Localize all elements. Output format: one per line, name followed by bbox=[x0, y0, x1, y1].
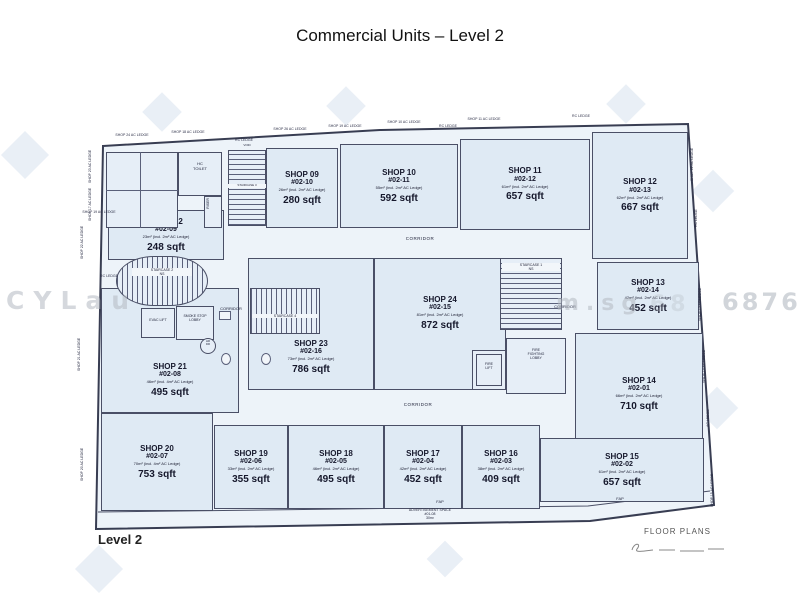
shop-area-note: 23m² (incl. 2m² AC Ledge) bbox=[143, 235, 190, 240]
signature-scribble bbox=[626, 538, 736, 556]
shop-unit: #02-04 bbox=[412, 458, 434, 466]
shop-area-sqft: 657 sqft bbox=[603, 477, 641, 489]
shop-area-note: 66m² (incl. 2m² AC Ledge) bbox=[616, 394, 663, 399]
shop-name: SHOP 17 bbox=[406, 449, 440, 458]
ledge-label-t9: RC LEDGE bbox=[556, 114, 606, 118]
shop-unit: #02-16 bbox=[300, 348, 322, 356]
shop-unit: #02-01 bbox=[628, 385, 650, 393]
label-c1: CORRIDOR bbox=[384, 236, 456, 241]
shop-s09: SHOP 09 #02-10 26m² (incl. 2m² AC Ledge)… bbox=[266, 148, 338, 228]
shop-area-note: 38m² (incl. 2m² AC Ledge) bbox=[478, 467, 525, 472]
label-smokelobby: SMOKE STOP LOBBY bbox=[177, 314, 213, 322]
shop-name: SHOP 11 bbox=[508, 166, 541, 175]
shop-area-sqft: 710 sqft bbox=[620, 401, 658, 413]
watermark-text: CYLau bbox=[6, 286, 138, 315]
ledge-label-t7: RC LEDGE bbox=[430, 124, 466, 128]
shop-area-sqft: 280 sqft bbox=[283, 195, 321, 207]
label-void: VOID bbox=[228, 144, 266, 148]
label-hrdr: HR DR bbox=[200, 340, 216, 347]
ledge-label-t2: SHOP 18 AC LEDGE bbox=[168, 130, 208, 134]
shop-area-note: 55m² (incl. 2m² AC Ledge) bbox=[376, 186, 423, 191]
shop-area-sqft: 248 sqft bbox=[147, 242, 185, 254]
shop-name: SHOP 23 bbox=[294, 339, 328, 348]
shop-area-note: 61m² (incl. 2m² AC Ledge) bbox=[502, 185, 549, 190]
shop-name: SHOP 12 bbox=[623, 177, 657, 186]
shop-area-sqft: 592 sqft bbox=[380, 193, 418, 205]
ledge-label-r1: SHOP 12 AC LEDGE bbox=[690, 146, 694, 182]
shop-s19: SHOP 19 #02-06 33m² (incl. 2m² AC Ledge)… bbox=[214, 425, 288, 509]
floor-plan-page: Commercial Units – Level 2 SHOP 09 #02-1… bbox=[0, 0, 800, 600]
toilet-divider-wall bbox=[106, 190, 178, 191]
hc-toilet-room bbox=[178, 152, 222, 196]
shop-name: SHOP 10 bbox=[382, 168, 416, 177]
wc-fixture bbox=[221, 353, 231, 365]
shop-s17: SHOP 17 #02-04 42m² (incl. 2m² AC Ledge)… bbox=[384, 425, 462, 509]
shop-name: SHOP 13 bbox=[631, 278, 665, 287]
ledge-label-t6: SHOP 10 AC LEDGE bbox=[384, 120, 424, 124]
staircase-4 bbox=[250, 288, 320, 334]
label-firelift: FIRE LIFT bbox=[474, 362, 504, 370]
shop-area-note: 26m² (incl. 2m² AC Ledge) bbox=[279, 188, 326, 193]
shop-area-sqft: 495 sqft bbox=[317, 474, 355, 486]
label-ffl: FIRE FIGHTING LOBBY bbox=[510, 348, 562, 361]
label-evaclift: EVAC LIFT bbox=[142, 318, 174, 322]
shop-area-note: 62m² (incl. 2m² AC Ledge) bbox=[617, 196, 664, 201]
shop-area-sqft: 495 sqft bbox=[151, 387, 189, 399]
label-hctoilet: HC TOILET bbox=[182, 162, 218, 172]
ledge-label-l3: SHOP 19 AC LEDGE bbox=[82, 210, 116, 214]
label-stair2: STAIRCASE 2 NS bbox=[132, 268, 192, 276]
shop-unit: #02-13 bbox=[629, 187, 651, 195]
ledge-label-l4: SHOP 22 AC LEDGE bbox=[80, 224, 84, 260]
watermark-text: 68 bbox=[650, 292, 691, 317]
ledge-label-l6: SHOP 21 AC LEDGE bbox=[77, 336, 81, 372]
shop-unit: #02-02 bbox=[611, 461, 633, 469]
shop-unit: #02-12 bbox=[514, 176, 536, 184]
shop-unit: #02-11 bbox=[388, 177, 409, 185]
label-c3: CORRIDOR bbox=[206, 307, 256, 312]
shop-area-note: 42m² (incl. 2m² AC Ledge) bbox=[400, 467, 447, 472]
fire-fighting-lobby bbox=[506, 338, 566, 394]
ledge-label-l2: SHOP 17 AC LEDGE bbox=[88, 186, 92, 222]
shop-name: SHOP 19 bbox=[234, 449, 268, 458]
shop-name: SHOP 21 bbox=[153, 362, 187, 371]
sink-fixture bbox=[219, 311, 231, 320]
shop-unit: #02-05 bbox=[325, 458, 347, 466]
shop-area-note: 46m² (incl. 4m² AC Ledge) bbox=[147, 380, 194, 385]
shop-s15: SHOP 15 #02-02 61m² (incl. 2m² AC Ledge)… bbox=[540, 438, 704, 502]
label-fap2: FAP bbox=[610, 497, 630, 502]
shop-s16: SHOP 16 #02-03 38m² (incl. 2m² AC Ledge)… bbox=[462, 425, 540, 509]
ledge-label-t1: SHOP 24 AC LEDGE bbox=[112, 133, 152, 137]
shop-unit: #02-03 bbox=[490, 458, 512, 466]
evac-lift bbox=[141, 308, 175, 338]
label-fap1: FAP bbox=[430, 500, 450, 505]
ledge-label-t3: RC LEDGE bbox=[224, 138, 264, 142]
shop-name: SHOP 14 bbox=[622, 376, 656, 385]
shop-name: SHOP 24 bbox=[423, 295, 457, 304]
ledge-label-t8: SHOP 11 AC LEDGE bbox=[464, 117, 504, 121]
shop-unit: #02-07 bbox=[146, 453, 168, 461]
label-riser: RISER bbox=[206, 198, 210, 209]
shop-unit: #02-08 bbox=[159, 371, 181, 379]
shop-unit: #02-15 bbox=[429, 304, 451, 312]
floor-plans-label: FLOOR PLANS bbox=[644, 527, 711, 536]
ledge-label-t4: SHOP 26 AC LEDGE bbox=[270, 127, 310, 131]
shop-area-note: 73m² (incl. 2m² AC Ledge) bbox=[288, 357, 335, 362]
wc-fixture bbox=[261, 353, 271, 365]
shop-area-sqft: 667 sqft bbox=[621, 202, 659, 214]
label-stair4: STAIRCASE 4 bbox=[252, 314, 318, 318]
ledge-label-l1: SHOP 23 AC LEDGE bbox=[88, 148, 92, 184]
ledge-label-r3: SHOP 13 AC LEDGE bbox=[698, 286, 702, 322]
shop-area-sqft: 355 sqft bbox=[232, 474, 270, 486]
ledge-label-t5: SHOP 19 AC LEDGE bbox=[325, 124, 365, 128]
shop-area-note: 33m² (incl. 2m² AC Ledge) bbox=[228, 467, 275, 472]
shop-area-note: 70m² (incl. 4m² AC Ledge) bbox=[134, 462, 181, 467]
shop-s11: SHOP 11 #02-12 61m² (incl. 2m² AC Ledge)… bbox=[460, 139, 590, 230]
shop-area-sqft: 657 sqft bbox=[506, 191, 544, 203]
shop-name: SHOP 09 bbox=[285, 170, 319, 179]
ledge-label-r4: SHOP 14 AC LEDGE bbox=[702, 348, 706, 384]
ledge-label-r2: RC LEDGE bbox=[694, 200, 698, 236]
shop-name: SHOP 18 bbox=[319, 449, 353, 458]
shop-area-sqft: 409 sqft bbox=[482, 474, 520, 486]
shop-name: SHOP 16 bbox=[484, 449, 518, 458]
watermark-text: m.sg bbox=[556, 291, 644, 316]
shop-s18: SHOP 18 #02-05 46m² (incl. 2m² AC Ledge)… bbox=[288, 425, 384, 509]
shop-area-note: 61m² (incl. 2m² AC Ledge) bbox=[599, 470, 646, 475]
shop-s10: SHOP 10 #02-11 55m² (incl. 2m² AC Ledge)… bbox=[340, 144, 458, 228]
level-label: Level 2 bbox=[98, 532, 142, 547]
shop-unit: #02-06 bbox=[240, 458, 262, 466]
shop-unit: #02-10 bbox=[291, 179, 313, 187]
ledge-label-l7: SHOP 20 AC LEDGE bbox=[80, 446, 84, 482]
shop-s14: SHOP 14 #02-01 66m² (incl. 2m² AC Ledge)… bbox=[575, 333, 703, 455]
shop-area-sqft: 786 sqft bbox=[292, 364, 330, 376]
shop-area-note: 46m² (incl. 2m² AC Ledge) bbox=[313, 467, 360, 472]
ledge-label-l5: RC LEDGE bbox=[94, 274, 124, 278]
shop-s12: SHOP 12 #02-13 62m² (incl. 2m² AC Ledge)… bbox=[592, 132, 688, 259]
shop-name: SHOP 20 bbox=[140, 444, 174, 453]
staircase-3 bbox=[228, 150, 266, 226]
shop-area-note: 81m² (incl. 2m² AC Ledge) bbox=[417, 313, 464, 318]
label-stair3: STAIRCASE 3 bbox=[228, 184, 266, 188]
shop-s20: SHOP 20 #02-07 70m² (incl. 4m² AC Ledge)… bbox=[101, 413, 213, 511]
shop-name: SHOP 15 bbox=[605, 452, 639, 461]
shop-area-sqft: 452 sqft bbox=[404, 474, 442, 486]
ledge-label-r5: AC LEDGE bbox=[706, 400, 710, 436]
label-c2: CORRIDOR bbox=[382, 402, 454, 407]
ledge-label-r6: SHOP 15 AC LEDGE bbox=[710, 472, 714, 508]
shop-area-sqft: 872 sqft bbox=[421, 320, 459, 332]
label-adspace: ADVERTISEMENT SPACE #01-08 30m² bbox=[385, 509, 475, 521]
watermark-text: 6876 bbox=[722, 288, 800, 316]
shop-area-sqft: 753 sqft bbox=[138, 469, 176, 481]
label-stair1: STAIRCASE 1 NS bbox=[502, 263, 560, 271]
